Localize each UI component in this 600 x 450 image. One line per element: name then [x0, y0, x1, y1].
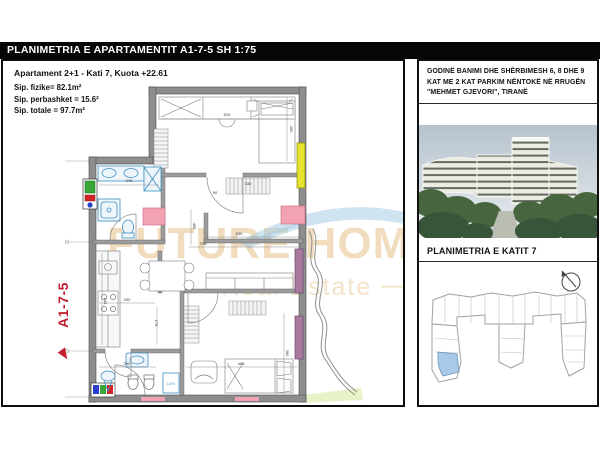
north-arrow-icon: [562, 271, 581, 291]
svg-text:90: 90: [213, 190, 218, 195]
window-marker-yellow: [297, 143, 305, 188]
window-marker-purple-2: [295, 316, 303, 359]
svg-text:290: 290: [124, 361, 131, 366]
dining-furniture: [140, 261, 194, 291]
sofa: [206, 273, 293, 289]
area-common: Sip. perbashket = 15.6²: [14, 94, 168, 106]
svg-text:175: 175: [154, 320, 159, 327]
svg-text:246: 246: [103, 298, 108, 305]
svg-text:455: 455: [192, 223, 197, 230]
header-bar: PLANIMETRIA E APARTAMENTIT A1-7-5 SH 1:7…: [0, 42, 600, 59]
svg-text:360: 360: [289, 126, 294, 133]
svg-text:360: 360: [285, 350, 290, 357]
apartment-info: Apartament 2+1 - Kati 7, Kuota +22.61 Si…: [14, 68, 168, 117]
svg-text:290: 290: [124, 297, 131, 302]
building-render-image: [419, 125, 597, 238]
area-physical: Sip. fizike= 82.1m²: [14, 82, 168, 94]
bedroom1-furniture: [159, 97, 295, 163]
plan-panel: Apartament 2+1 - Kati 7, Kuota +22.61 Si…: [1, 59, 405, 407]
svg-text:650: 650: [236, 231, 243, 236]
page-title: PLANIMETRIA E APARTAMENTIT A1-7-5 SH 1:7…: [7, 44, 256, 56]
bathroom1-fixtures: [98, 166, 161, 238]
svg-text:405: 405: [238, 361, 245, 366]
unit-label: A1-7-5: [55, 263, 71, 347]
svg-text:706: 706: [200, 241, 207, 246]
marker-pink-3: [141, 397, 165, 401]
page: PLANIMETRIA E APARTAMENTIT A1-7-5 SH 1:7…: [0, 0, 600, 450]
marker-pink-2: [281, 206, 305, 224]
svg-text:510: 510: [224, 112, 231, 117]
marker-pink-1: [143, 208, 165, 225]
shaft-marker-1: [83, 179, 97, 209]
window-marker-purple-1: [295, 249, 303, 293]
shaft-marker-2: [91, 383, 115, 397]
floor-plan-title: PLANIMETRIA E KATIT 7: [419, 246, 597, 262]
building-description: GODINË BANIMI DHE SHËRBIMESH 6, 8 DHE 9 …: [419, 61, 597, 104]
svg-text:330: 330: [245, 181, 252, 186]
apartment-title: Apartament 2+1 - Kati 7, Kuota +22.61: [14, 68, 168, 78]
marker-pink-4: [235, 397, 259, 401]
area-total: Sip. totale = 97.7m²: [14, 105, 168, 117]
svg-text:245: 245: [126, 178, 133, 183]
info-panel: GODINË BANIMI DHE SHËRBIMESH 6, 8 DHE 9 …: [417, 59, 599, 407]
highlighted-unit: [438, 352, 459, 376]
key-plan-drawing: [419, 264, 597, 400]
balcony-boundary-line: [309, 229, 357, 395]
shower-label: LxTh: [167, 382, 175, 386]
